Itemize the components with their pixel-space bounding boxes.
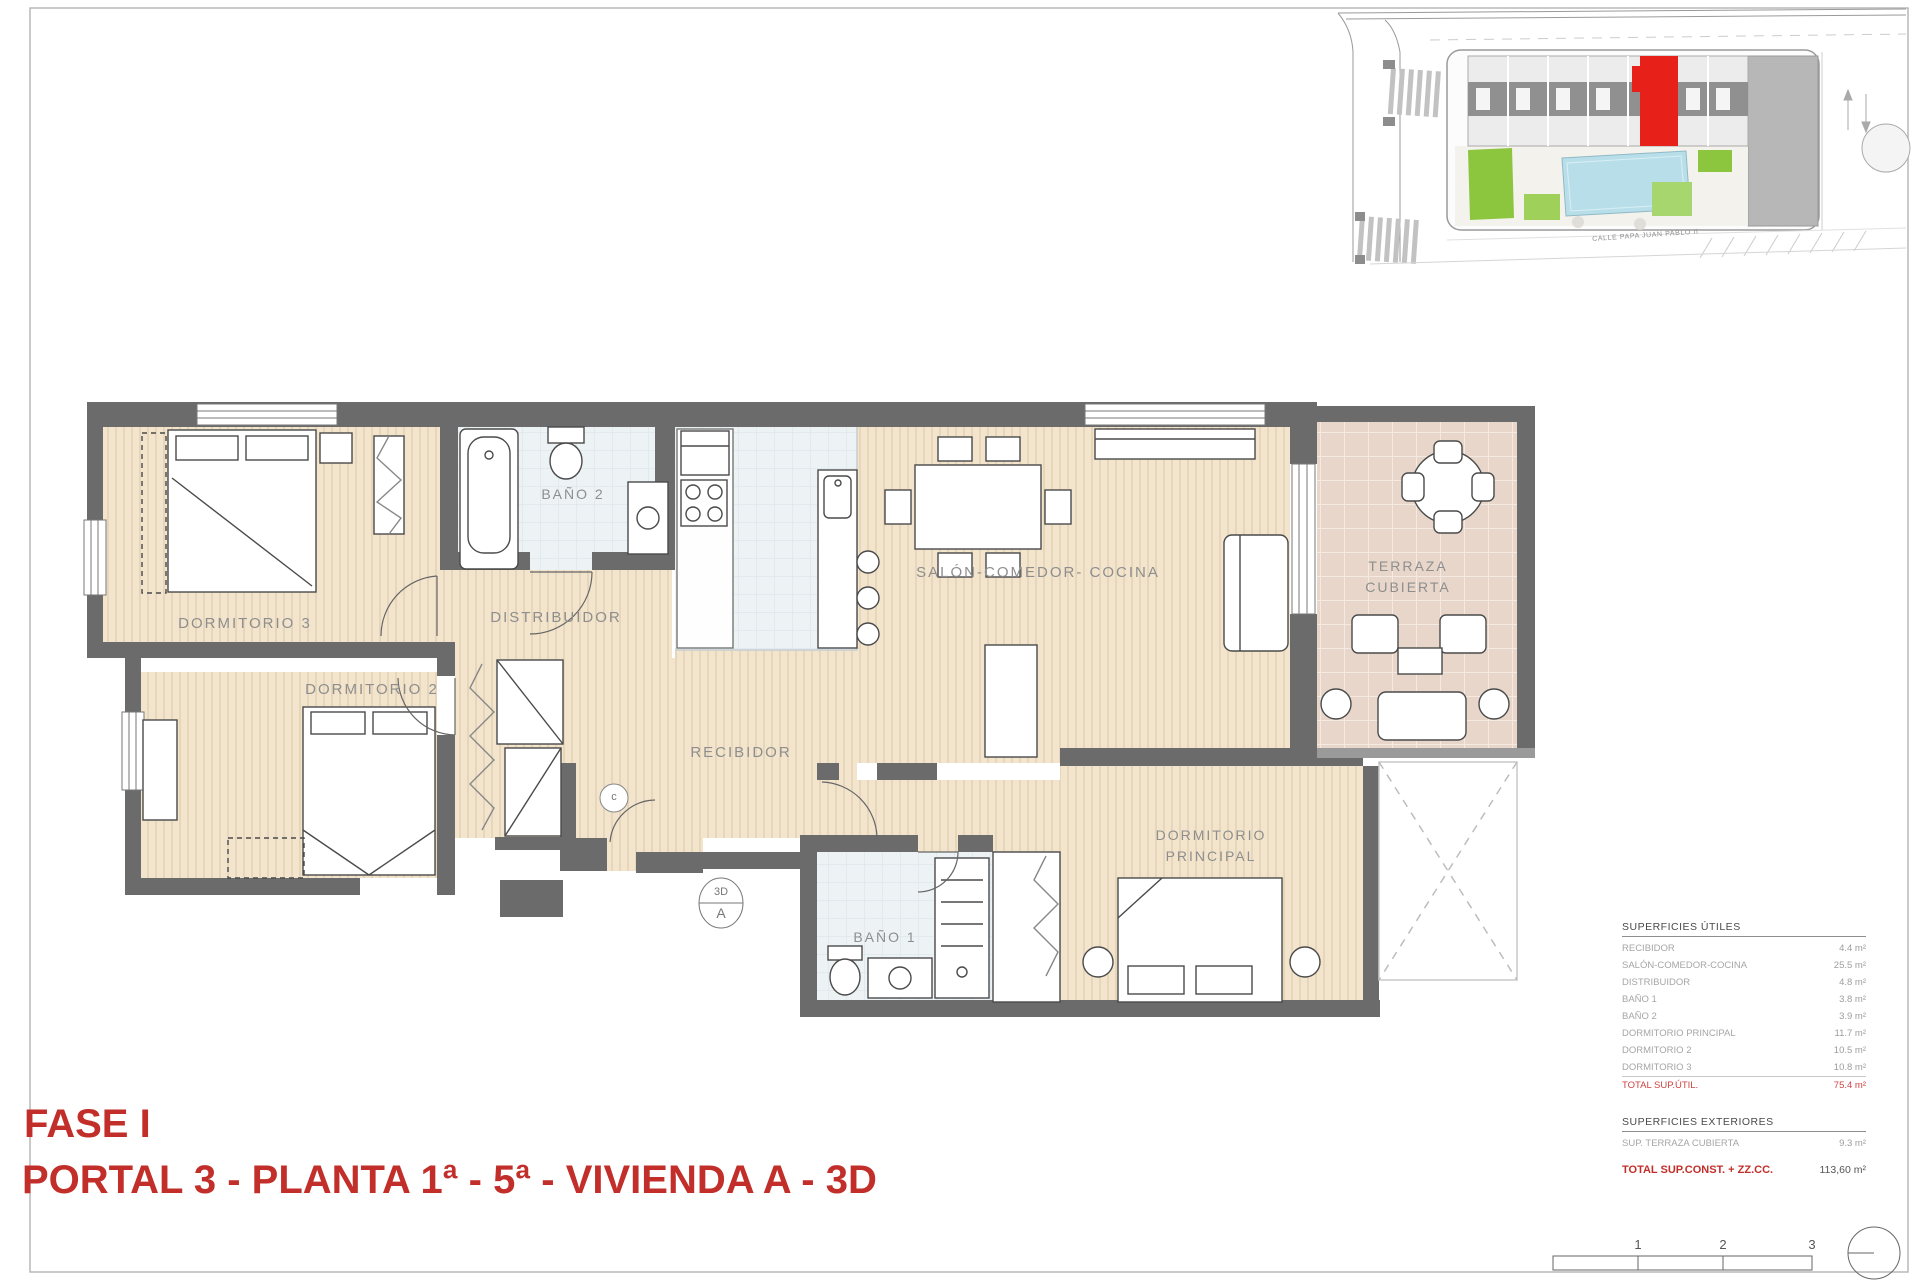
row-label: DORMITORIO 3 bbox=[1622, 1059, 1692, 1076]
table-row: SALÓN-COMEDOR-COCINA25.5 m² bbox=[1622, 957, 1866, 974]
toilet-bano1 bbox=[828, 946, 862, 960]
table-row: BAÑO 23.9 m² bbox=[1622, 1008, 1866, 1025]
chair bbox=[986, 437, 1020, 461]
label-terraza-line2: CUBIERTA bbox=[1365, 579, 1451, 595]
label-dorm-principal: DORMITORIO PRINCIPAL bbox=[1156, 825, 1267, 867]
fridge bbox=[681, 431, 729, 475]
green-patch-2 bbox=[1524, 194, 1560, 220]
scale-label-1: 1 bbox=[1634, 1237, 1641, 1252]
table-row: SUP. TERRAZA CUBIERTA9.3 m² bbox=[1622, 1135, 1866, 1152]
row-label: RECIBIDOR bbox=[1622, 940, 1675, 957]
row-value: 4.4 m² bbox=[1839, 940, 1866, 957]
table-row: RECIBIDOR4.4 m² bbox=[1622, 940, 1866, 957]
surfaces-exteriores-title: SUPERFICIES EXTERIORES bbox=[1622, 1116, 1866, 1132]
label-dormP-line1: DORMITORIO bbox=[1156, 827, 1267, 843]
toilet-bano2 bbox=[548, 427, 584, 443]
total-util-row: TOTAL SUP.ÚTIL.75.4 m² bbox=[1622, 1076, 1866, 1094]
chair bbox=[885, 490, 911, 524]
label-dormitorio2: DORMITORIO 2 bbox=[305, 681, 439, 698]
row-value: 10.5 m² bbox=[1834, 1042, 1866, 1059]
compass bbox=[1848, 1227, 1900, 1279]
plan-sheet: { "title_block": { "line1": "FASE I", "l… bbox=[0, 0, 1920, 1280]
grand-total-label: TOTAL SUP.CONST. + ZZ.CC. bbox=[1622, 1164, 1773, 1176]
unit-marker-bottom-text: A bbox=[716, 905, 725, 921]
surfaces-utiles-title: SUPERFICIES ÚTILES bbox=[1622, 921, 1866, 937]
side-table bbox=[1479, 689, 1509, 719]
table-row: BAÑO 13.8 m² bbox=[1622, 991, 1866, 1008]
stool bbox=[857, 623, 879, 645]
phase-title: FASE I bbox=[24, 1102, 151, 1147]
grand-total-row: TOTAL SUP.CONST. + ZZ.CC.113,60 m² bbox=[1622, 1164, 1866, 1176]
desk-dorm2 bbox=[143, 720, 177, 820]
closet-marker-text: c bbox=[611, 791, 617, 803]
basin-bano2 bbox=[628, 482, 668, 554]
label-terraza-line1: TERRAZA bbox=[1368, 558, 1447, 574]
basin-bano1 bbox=[868, 958, 932, 998]
row-label: BAÑO 1 bbox=[1622, 991, 1657, 1008]
row-label: DISTRIBUIDOR bbox=[1622, 974, 1690, 991]
sofa bbox=[1224, 535, 1288, 651]
row-value: 3.9 m² bbox=[1839, 1008, 1866, 1025]
crosswalk-top bbox=[1388, 68, 1441, 117]
table-row: DISTRIBUIDOR4.8 m² bbox=[1622, 974, 1866, 991]
row-value: 11.7 m² bbox=[1834, 1025, 1866, 1042]
table-row: DORMITORIO 310.8 m² bbox=[1622, 1059, 1866, 1076]
green-patch-1 bbox=[1468, 148, 1514, 220]
row-value: 25.5 m² bbox=[1834, 957, 1866, 974]
row-label: SALÓN-COMEDOR-COCINA bbox=[1622, 957, 1747, 974]
green-patch-4 bbox=[1698, 150, 1732, 172]
scale-label-2: 2 bbox=[1719, 1237, 1726, 1252]
row-label: BAÑO 2 bbox=[1622, 1008, 1657, 1025]
row-value: 9.3 m² bbox=[1839, 1135, 1866, 1152]
unit-title: PORTAL 3 - PLANTA 1ª - 5ª - VIVIENDA A -… bbox=[22, 1158, 877, 1203]
label-bano1: BAÑO 1 bbox=[853, 929, 916, 945]
sideboard bbox=[985, 645, 1037, 757]
parking-stripes bbox=[1700, 231, 1866, 258]
green-patch-3 bbox=[1652, 182, 1692, 216]
dining-table bbox=[915, 465, 1041, 549]
row-label: SUP. TERRAZA CUBIERTA bbox=[1622, 1135, 1739, 1152]
floor-plan bbox=[84, 402, 1535, 1017]
nightstand bbox=[1290, 947, 1320, 977]
tv-unit bbox=[1095, 429, 1255, 459]
lounge-chair bbox=[1352, 615, 1398, 653]
total-value: 75.4 m² bbox=[1834, 1077, 1866, 1094]
patio-court bbox=[1379, 762, 1517, 980]
lounge-chair bbox=[1440, 615, 1486, 653]
scale-bar bbox=[1553, 1256, 1812, 1270]
nightstand-dorm3 bbox=[320, 433, 352, 463]
label-dormP-line2: PRINCIPAL bbox=[1166, 848, 1257, 864]
label-bano2: BAÑO 2 bbox=[541, 486, 604, 502]
row-value: 10.8 m² bbox=[1834, 1059, 1866, 1076]
coffee-table bbox=[1398, 648, 1442, 674]
surfaces-table: SUPERFICIES ÚTILES RECIBIDOR4.4 m² SALÓN… bbox=[1622, 921, 1866, 1176]
terrace-chair bbox=[1434, 511, 1462, 533]
row-value: 4.8 m² bbox=[1839, 974, 1866, 991]
chair bbox=[1045, 490, 1071, 524]
terrace-chair bbox=[1402, 473, 1424, 501]
label-dormitorio3: DORMITORIO 3 bbox=[178, 615, 312, 632]
table-row: DORMITORIO PRINCIPAL11.7 m² bbox=[1622, 1025, 1866, 1042]
scale-label-3: 3 bbox=[1808, 1237, 1815, 1252]
label-distribuidor: DISTRIBUIDOR bbox=[490, 609, 622, 626]
crosswalk-bottom bbox=[1357, 216, 1419, 264]
label-salon: SALÓN-COMEDOR- COCINA bbox=[916, 564, 1160, 581]
outdoor-sofa bbox=[1378, 692, 1466, 740]
stool bbox=[857, 587, 879, 609]
terrace-chair bbox=[1472, 473, 1494, 501]
row-label: DORMITORIO PRINCIPAL bbox=[1622, 1025, 1736, 1042]
roundabout bbox=[1862, 124, 1910, 172]
unit-marker-top-text: 3D bbox=[714, 886, 728, 898]
grand-total-value: 113,60 m² bbox=[1820, 1164, 1867, 1176]
terrace-edge bbox=[1317, 748, 1535, 758]
side-table bbox=[1321, 689, 1351, 719]
row-value: 3.8 m² bbox=[1839, 991, 1866, 1008]
site-plan bbox=[1338, 9, 1910, 264]
closet-dormP bbox=[993, 852, 1060, 1002]
label-recibidor: RECIBIDOR bbox=[690, 744, 791, 761]
label-terraza: TERRAZA CUBIERTA bbox=[1365, 556, 1451, 598]
table-row: DORMITORIO 210.5 m² bbox=[1622, 1042, 1866, 1059]
building-mass bbox=[1748, 56, 1818, 226]
row-label: DORMITORIO 2 bbox=[1622, 1042, 1692, 1059]
terrace-chair bbox=[1434, 441, 1462, 463]
stool bbox=[857, 551, 879, 573]
chair bbox=[938, 437, 972, 461]
nightstand bbox=[1083, 947, 1113, 977]
total-label: TOTAL SUP.ÚTIL. bbox=[1622, 1077, 1698, 1094]
unit-row bbox=[1468, 56, 1748, 146]
traffic-arrows bbox=[1844, 90, 1870, 132]
